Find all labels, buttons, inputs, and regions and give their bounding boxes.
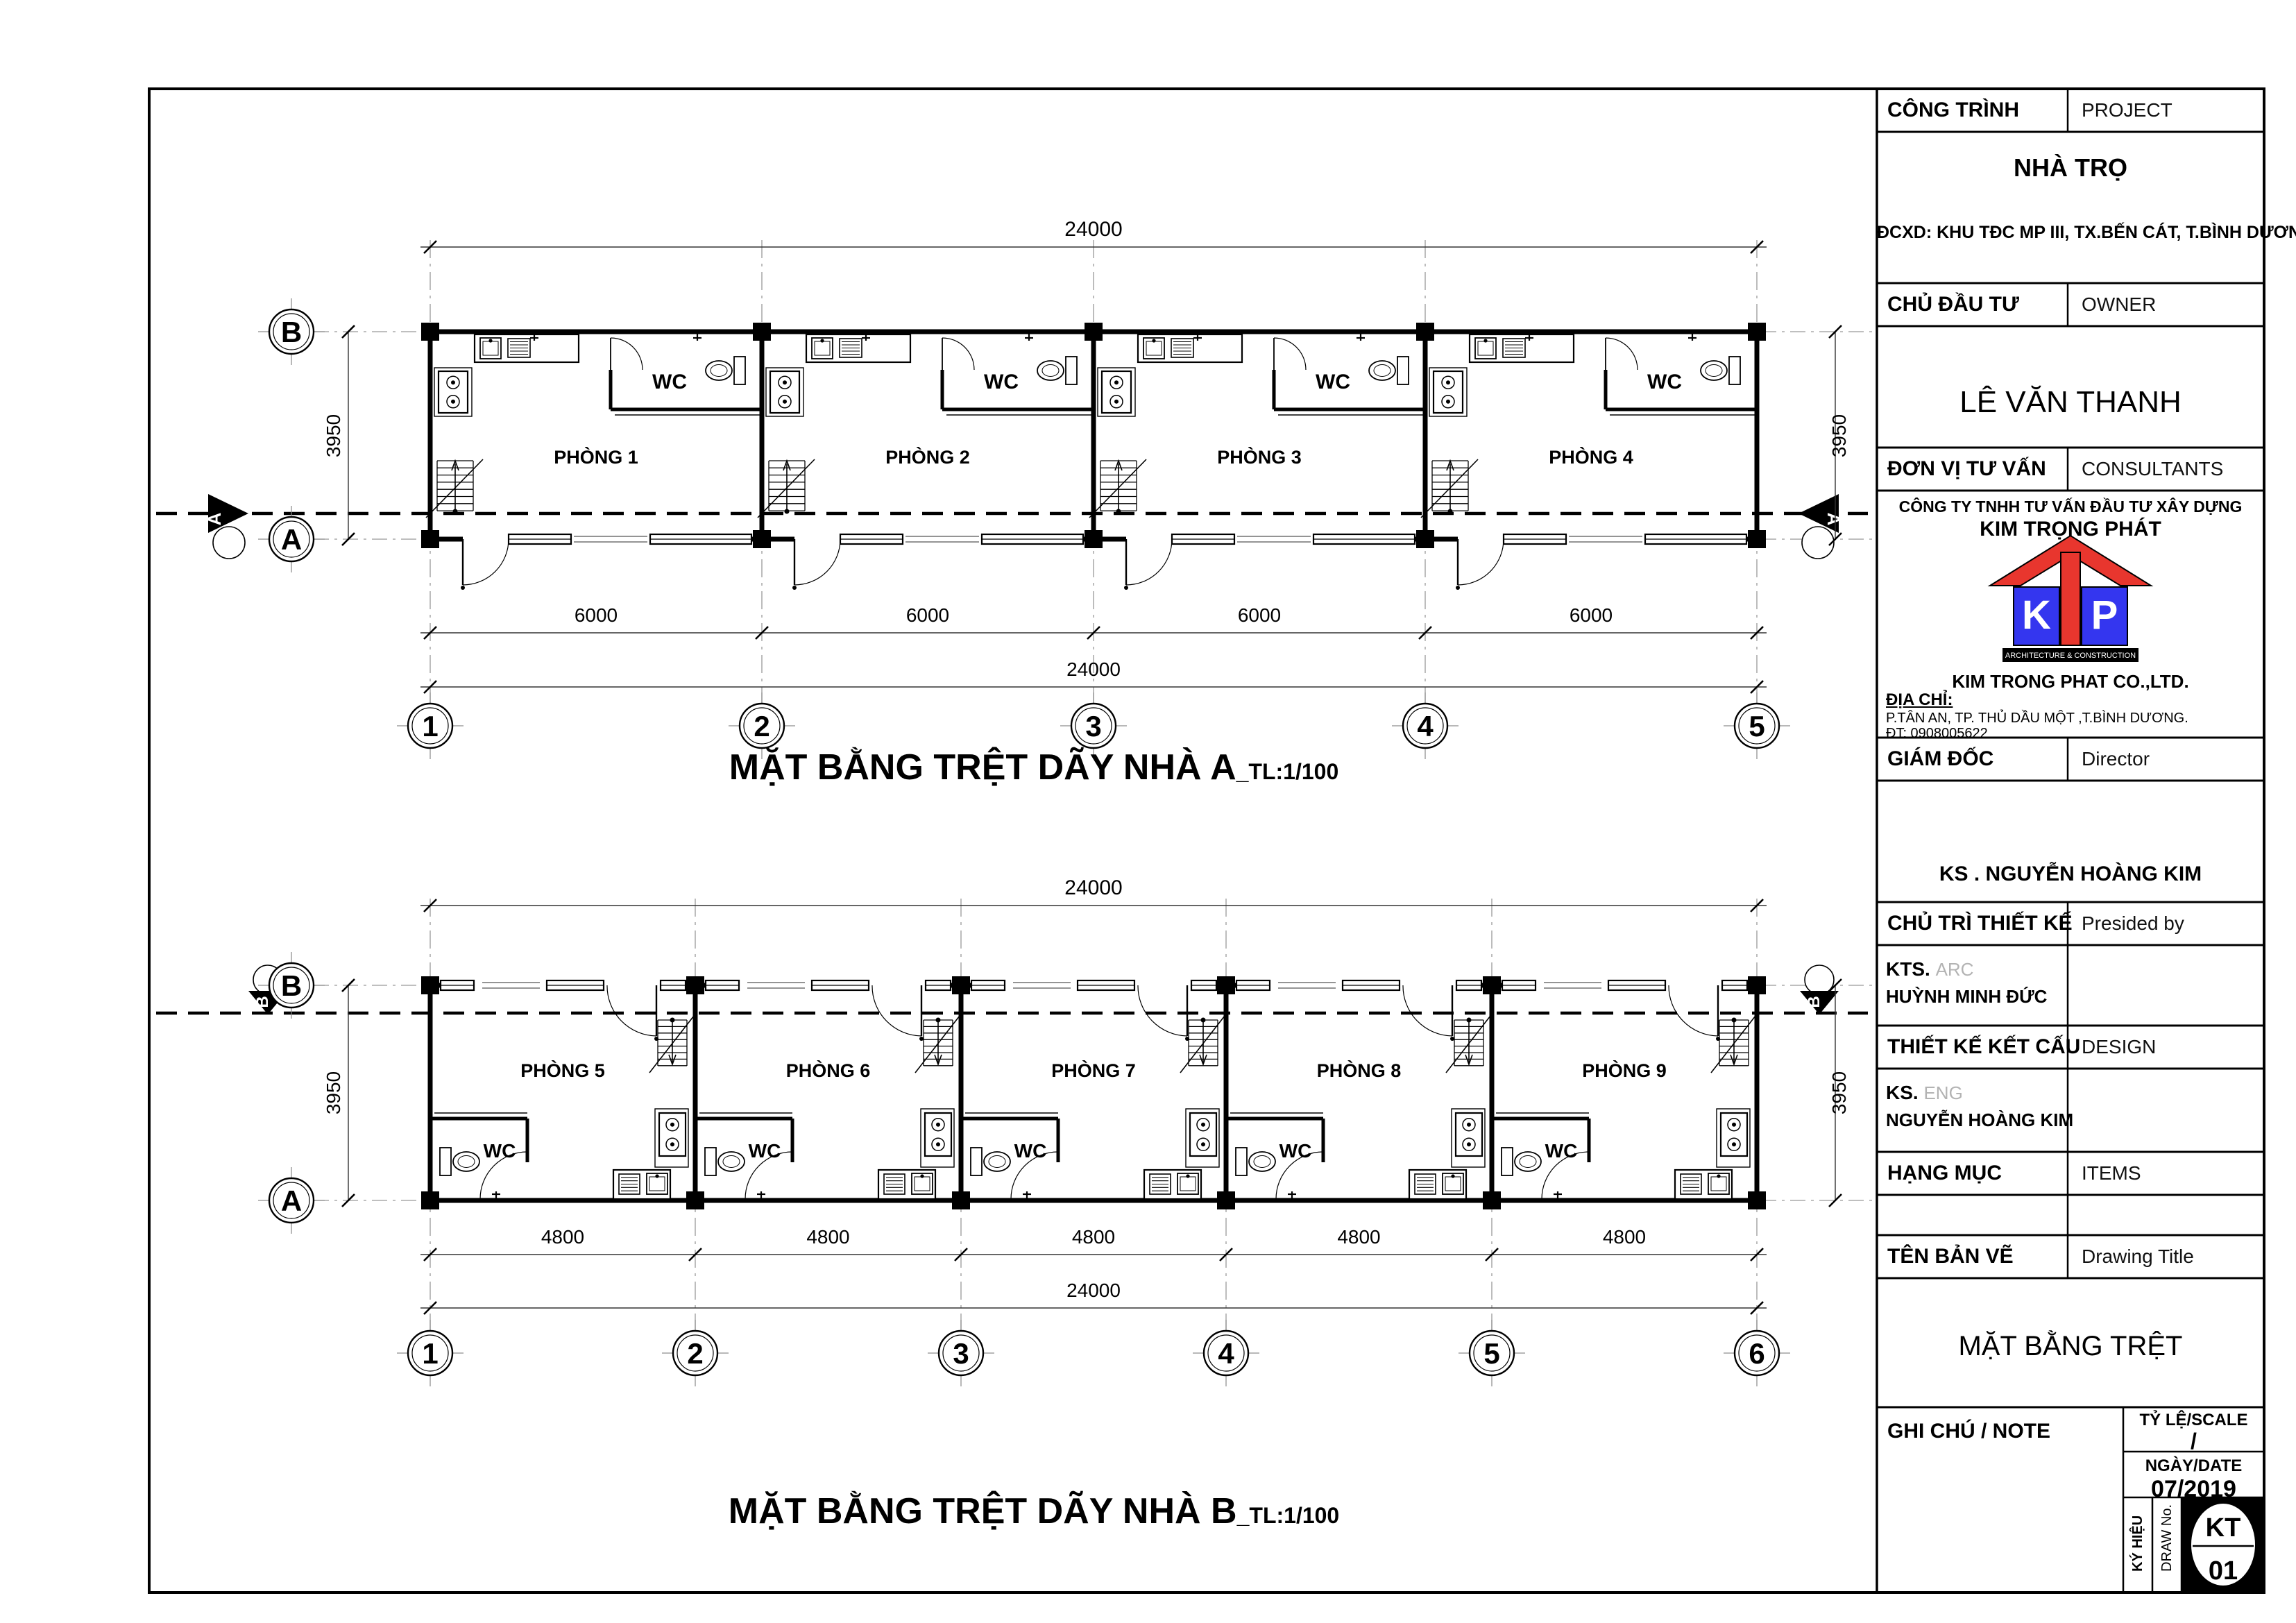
- project-label-en: PROJECT: [2082, 100, 2172, 121]
- svg-text:P: P: [2091, 593, 2118, 638]
- owner-name: LÊ VĂN THANH: [1877, 386, 2264, 419]
- plan-a-room-3: WCPHÒNG 3: [1089, 332, 1425, 590]
- director-name: KS . NGUYỄN HOÀNG KIM: [1877, 863, 2264, 885]
- grid-bubble-label: 3: [1085, 710, 1101, 742]
- dim-total-bottom: 24000: [1066, 1280, 1121, 1301]
- section-letter: A: [1823, 513, 1844, 526]
- grid-bubble-label: A: [281, 1184, 302, 1217]
- engineer-prefix-en: ENG: [1923, 1082, 1962, 1103]
- room-label: PHÒNG 4: [1549, 446, 1633, 468]
- plan-a-section-marker-right: A: [1798, 494, 1844, 559]
- grid-bubble-label: 1: [422, 710, 438, 742]
- room-label: PHÒNG 7: [1051, 1060, 1136, 1081]
- structure-label-en: DESIGN: [2082, 1037, 2156, 1058]
- dim-bay: 6000: [1570, 604, 1613, 626]
- room-label: PHÒNG 2: [885, 446, 970, 468]
- dim-total-top: 24000: [1064, 876, 1122, 899]
- grid-bubble-label: B: [281, 316, 302, 348]
- section-letter: A: [204, 512, 225, 525]
- grid-bubble-label: 2: [687, 1337, 703, 1370]
- consultant-label: ĐƠN VỊ TƯ VẤN: [1887, 457, 2046, 480]
- plan-b-scale: _TL:1/100: [1237, 1503, 1340, 1528]
- plan-a-room-2: WCPHÒNG 2: [758, 332, 1094, 590]
- director-label: GIÁM ĐỐC: [1887, 747, 1993, 770]
- plan-b-room-8: WCPHÒNG 8: [1226, 980, 1492, 1200]
- note-label: GHI CHÚ / NOTE: [1887, 1420, 2050, 1443]
- wc-label: WC: [1279, 1140, 1312, 1162]
- drawing-title-label: TÊN BẢN VẼ: [1887, 1245, 2014, 1268]
- architect-prefix-vn: KTS.: [1886, 958, 1930, 980]
- room-label: PHÒNG 8: [1317, 1060, 1402, 1081]
- engineer-prefix-vn: KS.: [1886, 1082, 1919, 1103]
- grid-bubble-label: 6: [1749, 1337, 1764, 1370]
- presided-label-en: Presided by: [2082, 913, 2184, 935]
- architect-name: HUỲNH MINH ĐỨC: [1886, 987, 2047, 1007]
- plan-b-grid-bubbles: 123456BA: [258, 952, 1790, 1386]
- items-label: HẠNG MỤC: [1887, 1162, 2002, 1184]
- grid-bubble-label: 5: [1749, 710, 1764, 742]
- plan-b-section-marker-right: B: [1800, 965, 1839, 1014]
- architect-prefix-en: ARC: [1936, 959, 1974, 980]
- room-label: PHÒNG 5: [520, 1060, 605, 1081]
- dim-depth: 3950: [323, 1071, 344, 1114]
- room-label: PHÒNG 1: [554, 446, 638, 468]
- plan-a-scale: _TL:1/100: [1236, 759, 1339, 784]
- consultant-label-en: CONSULTANTS: [2082, 459, 2223, 480]
- drawing-number-badge: KT 01: [2182, 1497, 2264, 1592]
- dim-bay: 6000: [575, 604, 618, 626]
- wc-label: WC: [1316, 371, 1350, 393]
- address-label: ĐỊA CHỈ:: [1886, 691, 1953, 709]
- plan-a-room-4: WCPHÒNG 4: [1421, 332, 1757, 590]
- grid-bubble-label: 4: [1417, 710, 1434, 742]
- plan-a-caption: MẶT BẰNG TRỆT DÃY NHÀ A_TL:1/100: [444, 748, 1624, 788]
- room-label: PHÒNG 3: [1217, 446, 1302, 468]
- dim-depth: 3950: [1828, 1071, 1850, 1114]
- wc-label: WC: [1014, 1140, 1047, 1162]
- svg-text:K: K: [2022, 593, 2051, 638]
- plan-a: [156, 240, 1873, 748]
- dim-total-top: 24000: [1064, 218, 1122, 241]
- grid-bubble-label: B: [281, 969, 302, 1002]
- wc-label: WC: [1545, 1140, 1578, 1162]
- svg-text:KT: KT: [2206, 1513, 2241, 1543]
- plan-b: [156, 899, 1873, 1375]
- svg-text:01: 01: [2209, 1556, 2238, 1586]
- dim-bay: 4800: [806, 1226, 849, 1248]
- dim-bay: 4800: [541, 1226, 584, 1248]
- consultant-company-line1: CÔNG TY TNHH TƯ VẤN ĐẦU TƯ XÂY DỰNG: [1877, 498, 2264, 516]
- ktp-logo: K P ARCHITECTURE & CONSTRUCTION: [1987, 532, 2154, 668]
- structure-label: THIẾT KẾ KẾT CẤU: [1887, 1035, 2080, 1058]
- dim-bay: 4800: [1603, 1226, 1646, 1248]
- dim-bay: 6000: [1238, 604, 1281, 626]
- grid-bubble-label: 4: [1218, 1337, 1234, 1370]
- room-label: PHÒNG 9: [1582, 1060, 1667, 1081]
- engineer-prefix: KS. ENG: [1886, 1082, 1963, 1104]
- company-name-en: KIM TRONG PHAT CO.,LTD.: [1877, 672, 2264, 692]
- presided-label: CHỦ TRÌ THIẾT KẾ: [1887, 912, 2073, 935]
- owner-label: CHỦ ĐẦU TƯ: [1887, 293, 2019, 316]
- drawing-title: MẶT BẰNG TRỆT: [1877, 1331, 2264, 1361]
- items-label-en: ITEMS: [2082, 1163, 2141, 1184]
- grid-bubble-label: 3: [953, 1337, 969, 1370]
- scale-label: TỶ LỆ/SCALE: [2123, 1411, 2264, 1429]
- date-label: NGÀY/DATE: [2123, 1457, 2264, 1475]
- plan-b-caption: MẶT BẰNG TRỆT DÃY NHÀ B_TL:1/100: [444, 1492, 1624, 1531]
- wc-label: WC: [984, 371, 1019, 393]
- dim-depth: 3950: [1828, 414, 1850, 457]
- dim-bay: 4800: [1337, 1226, 1380, 1248]
- drawing-sheet: WCPHÒNG 1WCPHÒNG 2WCPHÒNG 3WCPHÒNG 4AA24…: [0, 0, 2296, 1623]
- scale-value: /: [2123, 1429, 2264, 1454]
- engineer-name: NGUYỄN HOÀNG KIM: [1886, 1110, 2073, 1130]
- plan-b-dimensions: 24000480048004800480048002400039503950: [323, 876, 1850, 1314]
- phone-line: ĐT: 0908005622: [1886, 726, 1988, 741]
- room-label: PHÒNG 6: [786, 1060, 871, 1081]
- svg-text:ARCHITECTURE & CONSTRUCTION: ARCHITECTURE & CONSTRUCTION: [2005, 652, 2136, 660]
- grid-bubble-label: 1: [422, 1337, 438, 1370]
- dim-total-bottom: 24000: [1066, 658, 1121, 680]
- plan-a-title: MẶT BẰNG TRỆT DÃY NHÀ A: [729, 747, 1236, 788]
- grid-bubble-label: 5: [1483, 1337, 1499, 1370]
- plan-a-room-1: WCPHÒNG 1: [426, 332, 762, 590]
- project-address: ĐCXD: KHU TĐC MP III, TX.BẾN CÁT, T.BÌNH…: [1877, 223, 2264, 243]
- symbol-label: KÝ HIỆU: [2130, 1516, 2145, 1572]
- project-label: CÔNG TRÌNH: [1887, 99, 2019, 121]
- dim-depth: 3950: [323, 414, 344, 457]
- plan-a-grid-bubbles: 12345BA: [258, 298, 1790, 759]
- wc-label: WC: [749, 1140, 781, 1162]
- section-letter: B: [1805, 996, 1823, 1008]
- wc-label: WC: [1647, 371, 1682, 393]
- wc-label: WC: [652, 371, 687, 393]
- section-letter: B: [253, 996, 272, 1008]
- dim-bay: 6000: [906, 604, 949, 626]
- drawno-label: DRAW No.: [2159, 1516, 2175, 1572]
- director-label-en: Director: [2082, 749, 2150, 770]
- drawing-title-label-en: Drawing Title: [2082, 1246, 2194, 1268]
- address-line: P.TÂN AN, TP. THỦ DẦU MỘT ,T.BÌNH DƯƠNG.: [1886, 711, 2188, 726]
- grid-bubble-label: A: [281, 523, 302, 556]
- project-name: NHÀ TRỌ: [1877, 154, 2264, 182]
- grid-bubble-label: 2: [754, 710, 769, 742]
- floor-plan-drawing: WCPHÒNG 1WCPHÒNG 2WCPHÒNG 3WCPHÒNG 4AA24…: [0, 0, 2296, 1623]
- wc-label: WC: [484, 1140, 516, 1162]
- owner-label-en: OWNER: [2082, 294, 2156, 316]
- plan-b-title: MẶT BẰNG TRỆT DÃY NHÀ B: [729, 1491, 1237, 1531]
- plan-a-section-marker-left: A: [204, 494, 248, 559]
- dim-bay: 4800: [1072, 1226, 1115, 1248]
- architect-prefix: KTS. ARC: [1886, 959, 1973, 980]
